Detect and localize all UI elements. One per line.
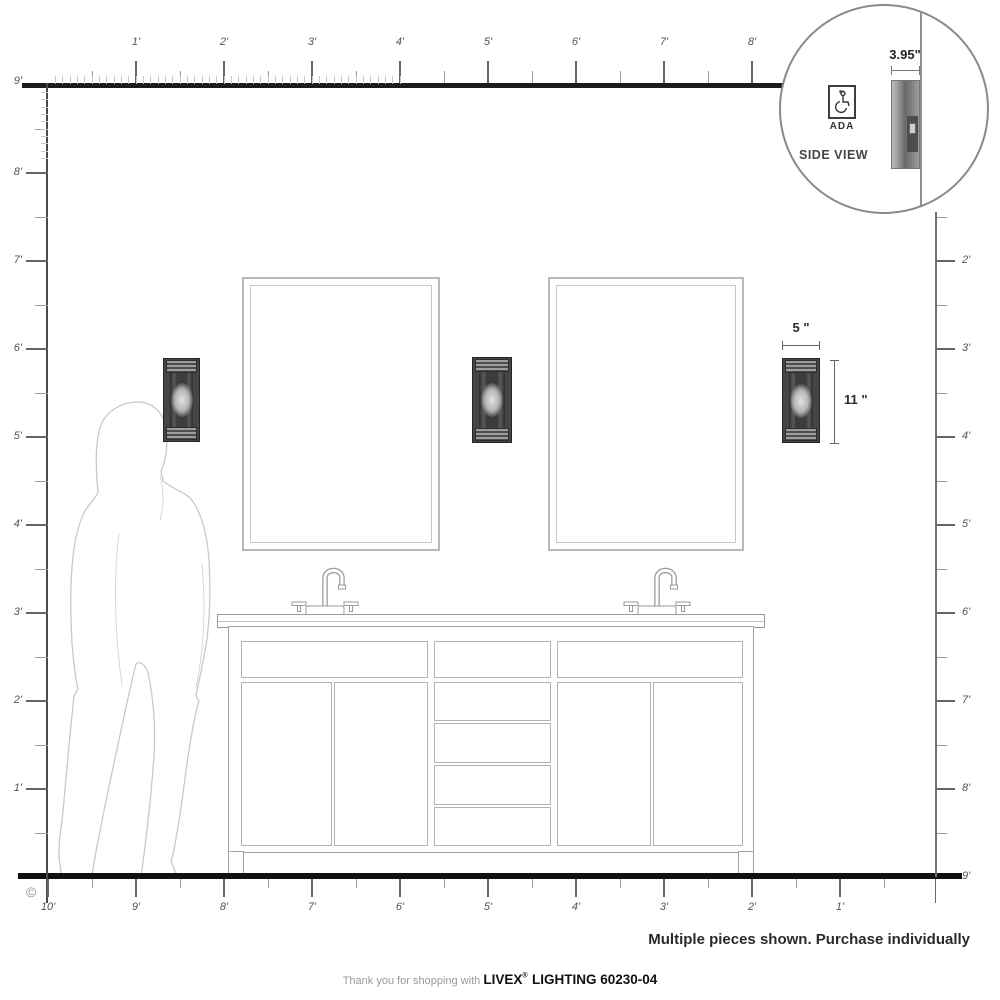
- ruler-tick: [26, 612, 48, 614]
- ruler-tick: [319, 76, 320, 84]
- dim-end-tick: [830, 360, 839, 361]
- side-view-label: SIDE VIEW: [799, 148, 889, 162]
- ruler-tick: [334, 76, 335, 84]
- inset-wall-line: [920, 6, 922, 214]
- ruler-tick: [378, 76, 379, 84]
- ruler-tick: [41, 121, 48, 122]
- ruler-tick: [77, 76, 78, 84]
- ruler-label: 7': [660, 36, 668, 48]
- ruler-tick: [937, 305, 947, 306]
- ruler-tick: [41, 151, 48, 152]
- ruler-label: 6': [2, 342, 22, 354]
- mirror-inner-frame: [250, 285, 432, 543]
- sconce-height-label: 11 ": [844, 392, 868, 407]
- vanity-door: [334, 682, 428, 846]
- sconce-bottom-cap: [475, 428, 509, 441]
- ruler-tick: [663, 61, 665, 83]
- ruler-tick: [136, 76, 137, 84]
- vanity-door: [241, 682, 332, 846]
- product-dimension-diagram: 5 " 11 ": [0, 0, 1000, 1000]
- ruler-tick: [937, 745, 947, 746]
- purchase-note: Multiple pieces shown. Purchase individu…: [648, 931, 970, 948]
- ruler-tick: [41, 129, 48, 130]
- ruler-tick: [202, 76, 203, 84]
- ruler-label: 2': [220, 36, 228, 48]
- ruler-label: 6': [396, 901, 404, 913]
- ruler-label: 8': [962, 782, 970, 794]
- ruler-label: 2': [2, 694, 22, 706]
- ruler-label: 5': [962, 518, 970, 530]
- ruler-tick: [70, 76, 71, 84]
- ruler-label: 8': [748, 36, 756, 48]
- ruler-tick: [41, 143, 48, 144]
- ruler-tick: [937, 436, 955, 438]
- ruler-tick: [620, 71, 621, 83]
- ruler-tick: [35, 393, 48, 394]
- ruler-tick: [172, 76, 173, 84]
- wall-sconce-left: [163, 358, 200, 442]
- ruler-tick: [224, 76, 225, 84]
- ruler-tick: [935, 879, 937, 903]
- ruler-tick: [937, 481, 947, 482]
- ruler-tick: [180, 879, 181, 888]
- ruler-tick: [796, 879, 797, 888]
- ruler-label: 2': [962, 254, 970, 266]
- ruler-tick: [135, 879, 137, 897]
- ruler-label: 2': [748, 901, 756, 913]
- wheelchair-icon: [832, 90, 852, 114]
- faucet-left: [290, 558, 360, 620]
- sconce-glass: [789, 373, 813, 428]
- ada-compliance-badge: [828, 85, 856, 119]
- side-view-shading: [907, 116, 918, 152]
- ruler-tick: [35, 481, 48, 482]
- sconce-top-cap: [475, 359, 509, 372]
- dim-end-tick: [782, 341, 783, 350]
- ruler-tick: [165, 76, 166, 84]
- floor-line: [18, 873, 962, 879]
- ruler-tick: [444, 71, 445, 83]
- product-number: LIGHTING 60230-04: [532, 972, 657, 987]
- ruler-tick: [35, 217, 48, 218]
- mirror-right: [548, 277, 744, 551]
- ruler-label: 7': [962, 694, 970, 706]
- ruler-tick: [260, 76, 261, 84]
- ruler-tick: [487, 879, 489, 897]
- ruler-label: 6': [572, 36, 580, 48]
- vanity-door: [653, 682, 743, 846]
- ruler-tick: [363, 76, 364, 84]
- ruler-label: 8': [2, 166, 22, 178]
- ruler-tick: [487, 61, 489, 83]
- ruler-label: 4': [396, 36, 404, 48]
- ruler-tick: [114, 76, 115, 84]
- ruler-tick: [26, 260, 48, 262]
- vanity-top-rail-left: [241, 641, 428, 678]
- sconce-height-dimension-line: [834, 360, 835, 444]
- faucet-right: [622, 558, 692, 620]
- ruler-tick: [399, 879, 401, 897]
- ruler-tick: [26, 524, 48, 526]
- ruler-tick: [282, 76, 283, 84]
- detail-inset-circle: 3.95" ADA SIDE VIEW: [779, 4, 989, 214]
- ruler-tick: [304, 76, 305, 84]
- brand-name: LIVEX: [483, 972, 522, 987]
- ruler-tick: [937, 569, 947, 570]
- ruler-label: 8': [220, 901, 228, 913]
- ruler-tick: [884, 879, 885, 888]
- ruler-tick: [937, 524, 955, 526]
- ruler-tick: [41, 92, 48, 93]
- ruler-tick: [356, 879, 357, 888]
- ruler-tick: [246, 76, 247, 84]
- ceiling-line: [22, 83, 784, 88]
- tagline-prefix: Thank you for shopping with: [343, 975, 484, 987]
- ruler-tick: [751, 61, 753, 83]
- wall-sconce-right: [782, 358, 820, 443]
- scale-figure-silhouette: [55, 395, 220, 880]
- sconce-top-cap: [166, 360, 197, 373]
- ruler-tick: [444, 879, 445, 888]
- vanity-drawer: [434, 641, 551, 678]
- ruler-label: 3': [308, 36, 316, 48]
- ruler-label: 6': [962, 606, 970, 618]
- ruler-label: 4': [572, 901, 580, 913]
- vanity-top-rail-right: [557, 641, 743, 678]
- sconce-width-dimension-line: [782, 345, 820, 346]
- ruler-tick: [937, 260, 955, 262]
- ruler-tick: [708, 879, 709, 888]
- ruler-tick: [937, 393, 947, 394]
- wall-sconce-center: [472, 357, 512, 443]
- ruler-tick: [41, 114, 48, 115]
- ruler-tick: [194, 76, 195, 84]
- ruler-tick: [937, 612, 955, 614]
- vanity-drawer: [434, 765, 551, 805]
- ruler-tick: [158, 76, 159, 84]
- ruler-tick: [341, 76, 342, 84]
- sconce-side-view: [891, 80, 920, 169]
- ruler-tick: [937, 833, 947, 834]
- ruler-label: 3': [660, 901, 668, 913]
- ruler-tick: [35, 745, 48, 746]
- ruler-tick: [370, 76, 371, 84]
- ruler-label: 7': [308, 901, 316, 913]
- ruler-label: 5': [484, 36, 492, 48]
- ruler-label: 10': [41, 901, 55, 913]
- ruler-tick: [937, 348, 955, 350]
- ruler-label: 3': [962, 342, 970, 354]
- ruler-tick: [62, 76, 63, 84]
- sconce-glow: [171, 383, 193, 417]
- ruler-tick: [180, 76, 181, 84]
- ruler-label: 5': [2, 430, 22, 442]
- ruler-tick: [839, 879, 841, 897]
- ruler-label: 4': [962, 430, 970, 442]
- sconce-bottom-cap: [785, 428, 817, 441]
- vanity-door: [557, 682, 651, 846]
- ruler-tick: [937, 217, 947, 218]
- ruler-tick: [356, 76, 357, 84]
- right-ruler-line: [935, 212, 937, 877]
- sconce-bottom-cap: [166, 427, 197, 440]
- ruler-tick: [26, 788, 48, 790]
- ruler-tick: [348, 76, 349, 84]
- sconce-glass: [479, 372, 505, 428]
- sconce-glass: [170, 373, 193, 427]
- ruler-tick: [400, 76, 401, 84]
- ruler-tick: [268, 879, 269, 888]
- ruler-tick: [575, 61, 577, 83]
- ruler-tick: [41, 107, 48, 108]
- ruler-tick: [35, 657, 48, 658]
- copyright-symbol: ©: [26, 884, 36, 900]
- ruler-tick: [92, 76, 93, 84]
- ruler-tick: [253, 76, 254, 84]
- ruler-tick: [84, 76, 85, 84]
- ruler-tick: [290, 76, 291, 84]
- ruler-tick: [575, 879, 577, 897]
- registered-mark: ®: [522, 973, 527, 980]
- ruler-tick: [99, 76, 100, 84]
- ruler-tick: [209, 76, 210, 84]
- ruler-tick: [708, 71, 709, 83]
- vanity-drawer: [434, 807, 551, 846]
- ruler-tick: [41, 136, 48, 137]
- dim-end-tick: [819, 341, 820, 350]
- ruler-tick: [41, 158, 48, 159]
- ruler-tick: [26, 700, 48, 702]
- ruler-tick: [35, 833, 48, 834]
- ruler-label: 9': [132, 901, 140, 913]
- ruler-tick: [937, 700, 955, 702]
- ruler-label: 1': [836, 901, 844, 913]
- ruler-tick: [187, 76, 188, 84]
- ruler-tick: [106, 76, 107, 84]
- ruler-tick: [121, 76, 122, 84]
- ruler-tick: [128, 76, 129, 84]
- ruler-tick: [663, 879, 665, 897]
- ruler-tick: [238, 76, 239, 84]
- ruler-tick: [35, 305, 48, 306]
- ruler-tick: [275, 76, 276, 84]
- ruler-label: 5': [484, 901, 492, 913]
- mirror-left: [242, 277, 440, 551]
- ruler-tick: [26, 172, 48, 174]
- ada-label: ADA: [817, 121, 867, 132]
- mirror-inner-frame: [556, 285, 736, 543]
- ruler-tick: [47, 879, 49, 897]
- ruler-tick: [326, 76, 327, 84]
- vanity-cabinet: [228, 626, 754, 853]
- depth-dimension-label: 3.95": [875, 47, 935, 62]
- ruler-tick: [55, 76, 56, 84]
- ruler-tick: [143, 76, 144, 84]
- ruler-tick: [751, 879, 753, 897]
- ruler-tick: [937, 657, 947, 658]
- ruler-tick: [216, 76, 217, 84]
- ruler-tick: [268, 76, 269, 84]
- ruler-tick: [26, 348, 48, 350]
- dim-end-tick: [891, 66, 892, 75]
- ruler-tick: [311, 879, 313, 897]
- ruler-label: 4': [2, 518, 22, 530]
- left-ruler-line: [46, 83, 48, 903]
- ruler-floor-label: 9': [962, 870, 970, 882]
- ruler-tick: [312, 76, 313, 84]
- depth-dimension-line: [891, 70, 920, 71]
- ruler-tick: [35, 569, 48, 570]
- dim-end-tick: [830, 443, 839, 444]
- dim-end-tick: [919, 66, 920, 75]
- sconce-glow: [790, 384, 812, 418]
- ruler-tick: [620, 879, 621, 888]
- brand-tagline: Thank you for shopping with LIVEX® LIGHT…: [0, 971, 1000, 989]
- ruler-tick: [41, 99, 48, 100]
- ruler-label: 1': [132, 36, 140, 48]
- ruler-label: 7': [2, 254, 22, 266]
- ruler-tick: [223, 879, 225, 897]
- ruler-origin-label: 9': [2, 75, 22, 87]
- ruler-tick: [532, 879, 533, 888]
- sconce-glow: [481, 383, 503, 417]
- side-view-notch: [909, 123, 916, 134]
- vanity-drawer: [434, 682, 551, 721]
- ruler-label: 3': [2, 606, 22, 618]
- ruler-tick: [532, 71, 533, 83]
- sconce-width-label: 5 ": [790, 320, 812, 335]
- ruler-tick: [26, 436, 48, 438]
- ruler-label: 1': [2, 782, 22, 794]
- ruler-tick: [937, 788, 955, 790]
- vanity-drawer: [434, 723, 551, 763]
- ruler-tick: [385, 76, 386, 84]
- countertop-edge-line: [218, 621, 764, 622]
- sconce-top-cap: [785, 360, 817, 373]
- ruler-tick: [231, 76, 232, 84]
- ruler-tick: [150, 76, 151, 84]
- ruler-tick: [297, 76, 298, 84]
- ruler-tick: [392, 76, 393, 84]
- ruler-tick: [92, 879, 93, 888]
